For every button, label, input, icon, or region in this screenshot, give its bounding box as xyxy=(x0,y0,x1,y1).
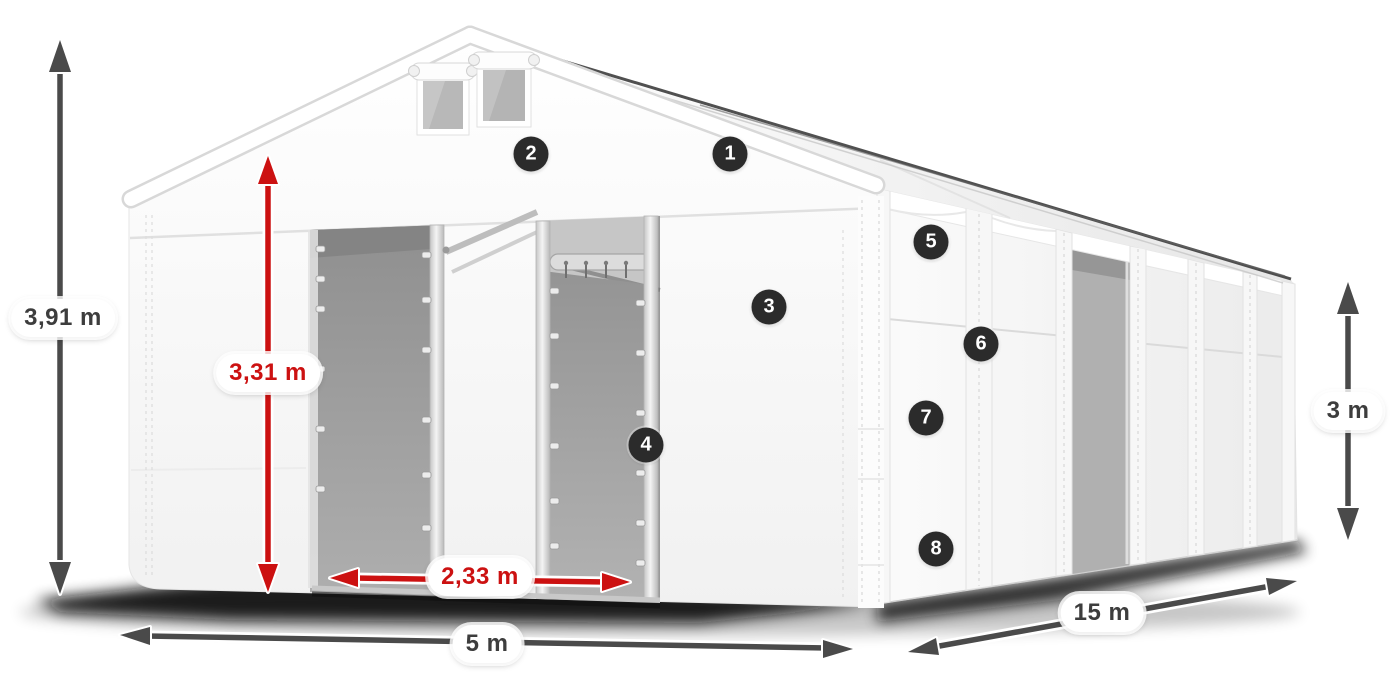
dimension-label-width: 5 m xyxy=(453,625,522,663)
part-marker-8: 8 xyxy=(919,532,954,567)
part-marker-1: 1 xyxy=(713,137,748,172)
part-marker-2: 2 xyxy=(514,137,549,172)
dimension-label-inner-height: 3,31 m xyxy=(216,354,320,392)
vent-window-right xyxy=(469,52,540,127)
part-marker-3: 3 xyxy=(752,290,787,325)
tent-dimension-diagram: 3,91 m 3,31 m 2,33 m 5 m 15 m 3 m 1 2 3 … xyxy=(0,0,1400,700)
part-marker-4: 4 xyxy=(629,428,664,463)
part-marker-6: 6 xyxy=(964,327,999,362)
part-marker-5: 5 xyxy=(914,225,949,260)
dimension-label-entrance-width: 2,33 m xyxy=(428,558,532,596)
right-entrance-opening xyxy=(536,216,660,603)
part-marker-7: 7 xyxy=(909,401,944,436)
vent-window-left xyxy=(409,63,478,135)
dimension-label-side-height: 3 m xyxy=(1314,392,1383,430)
left-entrance-opening xyxy=(308,225,444,596)
dimension-label-length: 15 m xyxy=(1061,594,1144,632)
dimension-label-total-height: 3,91 m xyxy=(11,299,115,337)
tent-illustration xyxy=(0,0,1400,700)
side-door-opening xyxy=(1072,233,1130,574)
